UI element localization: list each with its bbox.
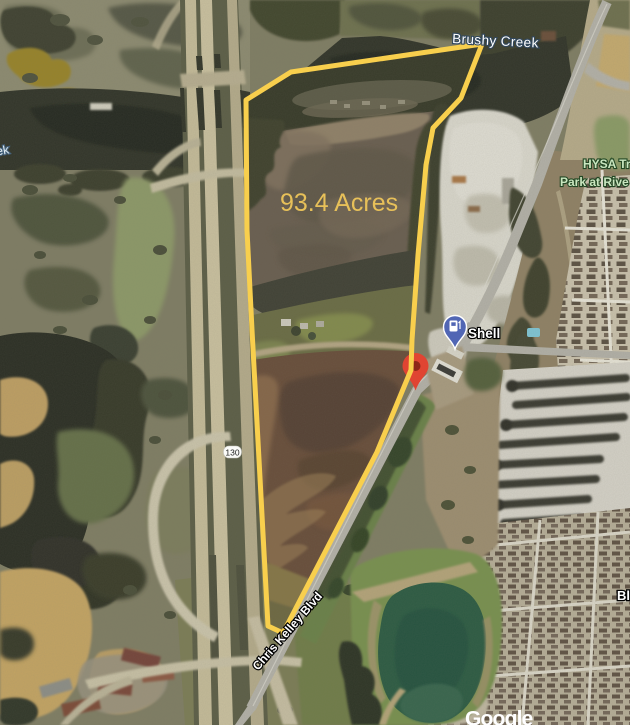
svg-text:HYSA Tr: HYSA Tr <box>583 157 630 171</box>
svg-text:Shell: Shell <box>468 326 500 341</box>
svg-text:Bl: Bl <box>617 588 630 603</box>
svg-text:93.4 Acres: 93.4 Acres <box>280 189 398 217</box>
svg-text:Park at Rive: Park at Rive <box>560 175 629 189</box>
svg-text:130: 130 <box>225 448 239 458</box>
svg-text:Google: Google <box>465 708 533 725</box>
